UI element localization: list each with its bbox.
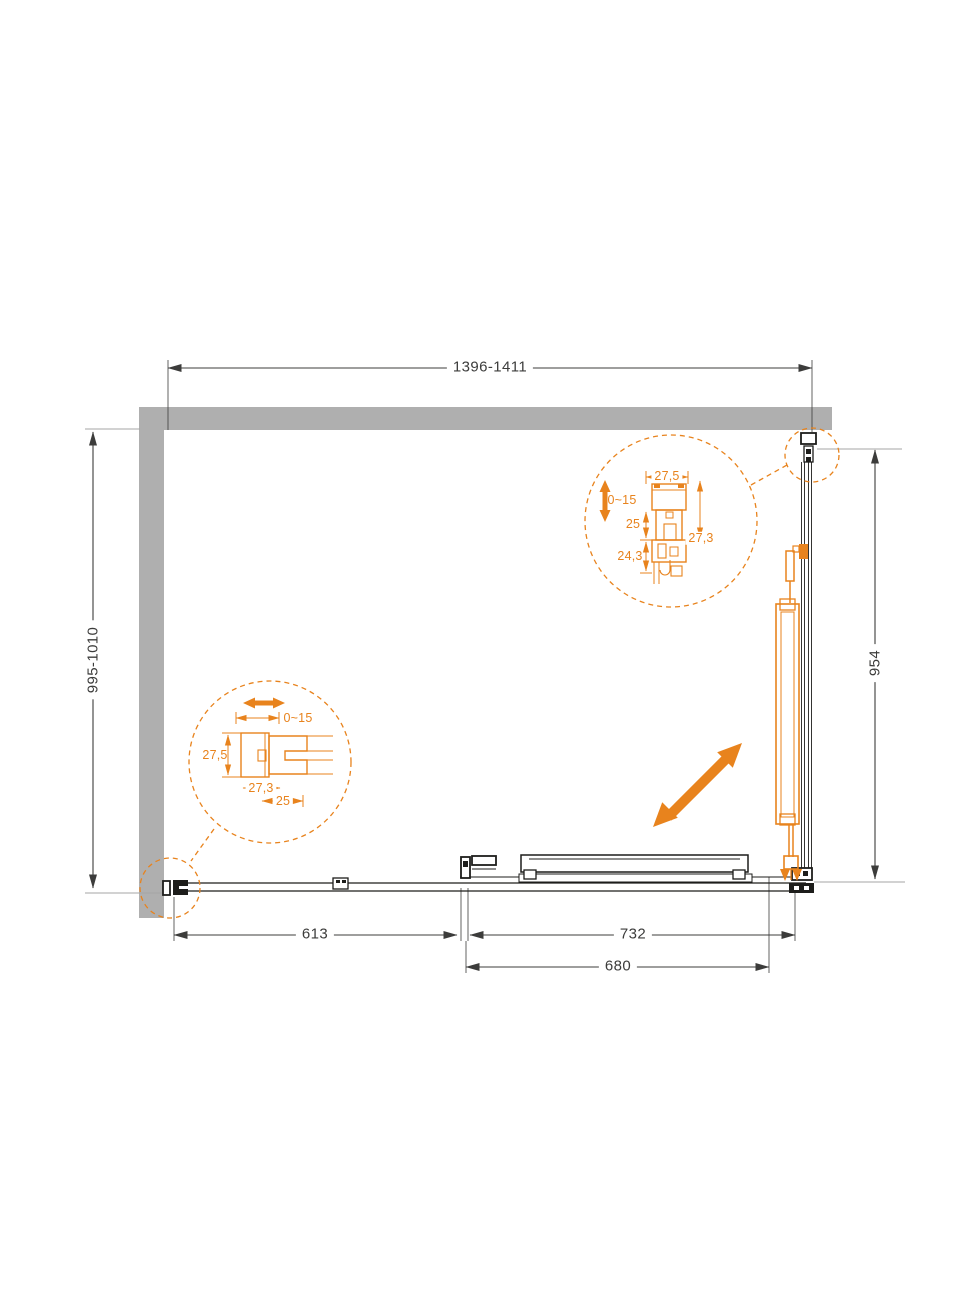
dim-label-depth-overall: 995-1010: [86, 621, 101, 700]
dim-label-door-opening: 680: [599, 959, 637, 974]
wall-top: [139, 407, 832, 430]
dim-label-front-section: 732: [614, 927, 652, 942]
side-wall-profile-top-right: [801, 433, 816, 462]
front-panel-clip: [333, 878, 348, 889]
dim-label-fixed-section: 613: [296, 927, 334, 942]
door-rail-profile-left: [461, 856, 496, 878]
plan-drawing: [0, 0, 975, 1300]
open-direction-arrow-icon: [653, 743, 742, 827]
detail-bl-label-profile-depth: 27,3: [245, 782, 276, 795]
horizontal-adjust-arrow-icon: [243, 698, 285, 709]
detail-bl-label-inner-offset: 25: [273, 795, 293, 808]
detail-tr-label-inner-offset: 25: [623, 518, 643, 531]
detail-tr-label-lower-depth: 24,3: [614, 550, 645, 563]
wall-left: [139, 407, 164, 918]
front-wall-profile-left: [163, 880, 188, 895]
detail-bl-label-profile-height: 27,5: [199, 749, 230, 762]
detail-bl-label-adjust-range: 0~15: [281, 712, 316, 725]
detail-top-right-profile: [640, 471, 708, 584]
plan-canvas: 1396-1411 995-1010 954 613 732 680 27,5 …: [0, 0, 975, 1300]
side-glass-panel: [802, 462, 812, 868]
door-handle: [780, 824, 802, 881]
detail-tr-label-profile-width: 27,5: [651, 470, 682, 483]
open-door-panel: [776, 599, 799, 825]
sliding-door-panel: [519, 855, 752, 882]
corner-profile-bottom-right: [789, 868, 814, 893]
detail-tr-label-adjust-range: 0~15: [605, 494, 640, 507]
dim-label-side-panel: 954: [868, 644, 883, 682]
detail-tr-label-side-depth: 27,3: [685, 532, 716, 545]
dim-label-width-overall: 1396-1411: [447, 360, 533, 375]
detail-bottom-left-profile: [222, 712, 333, 807]
